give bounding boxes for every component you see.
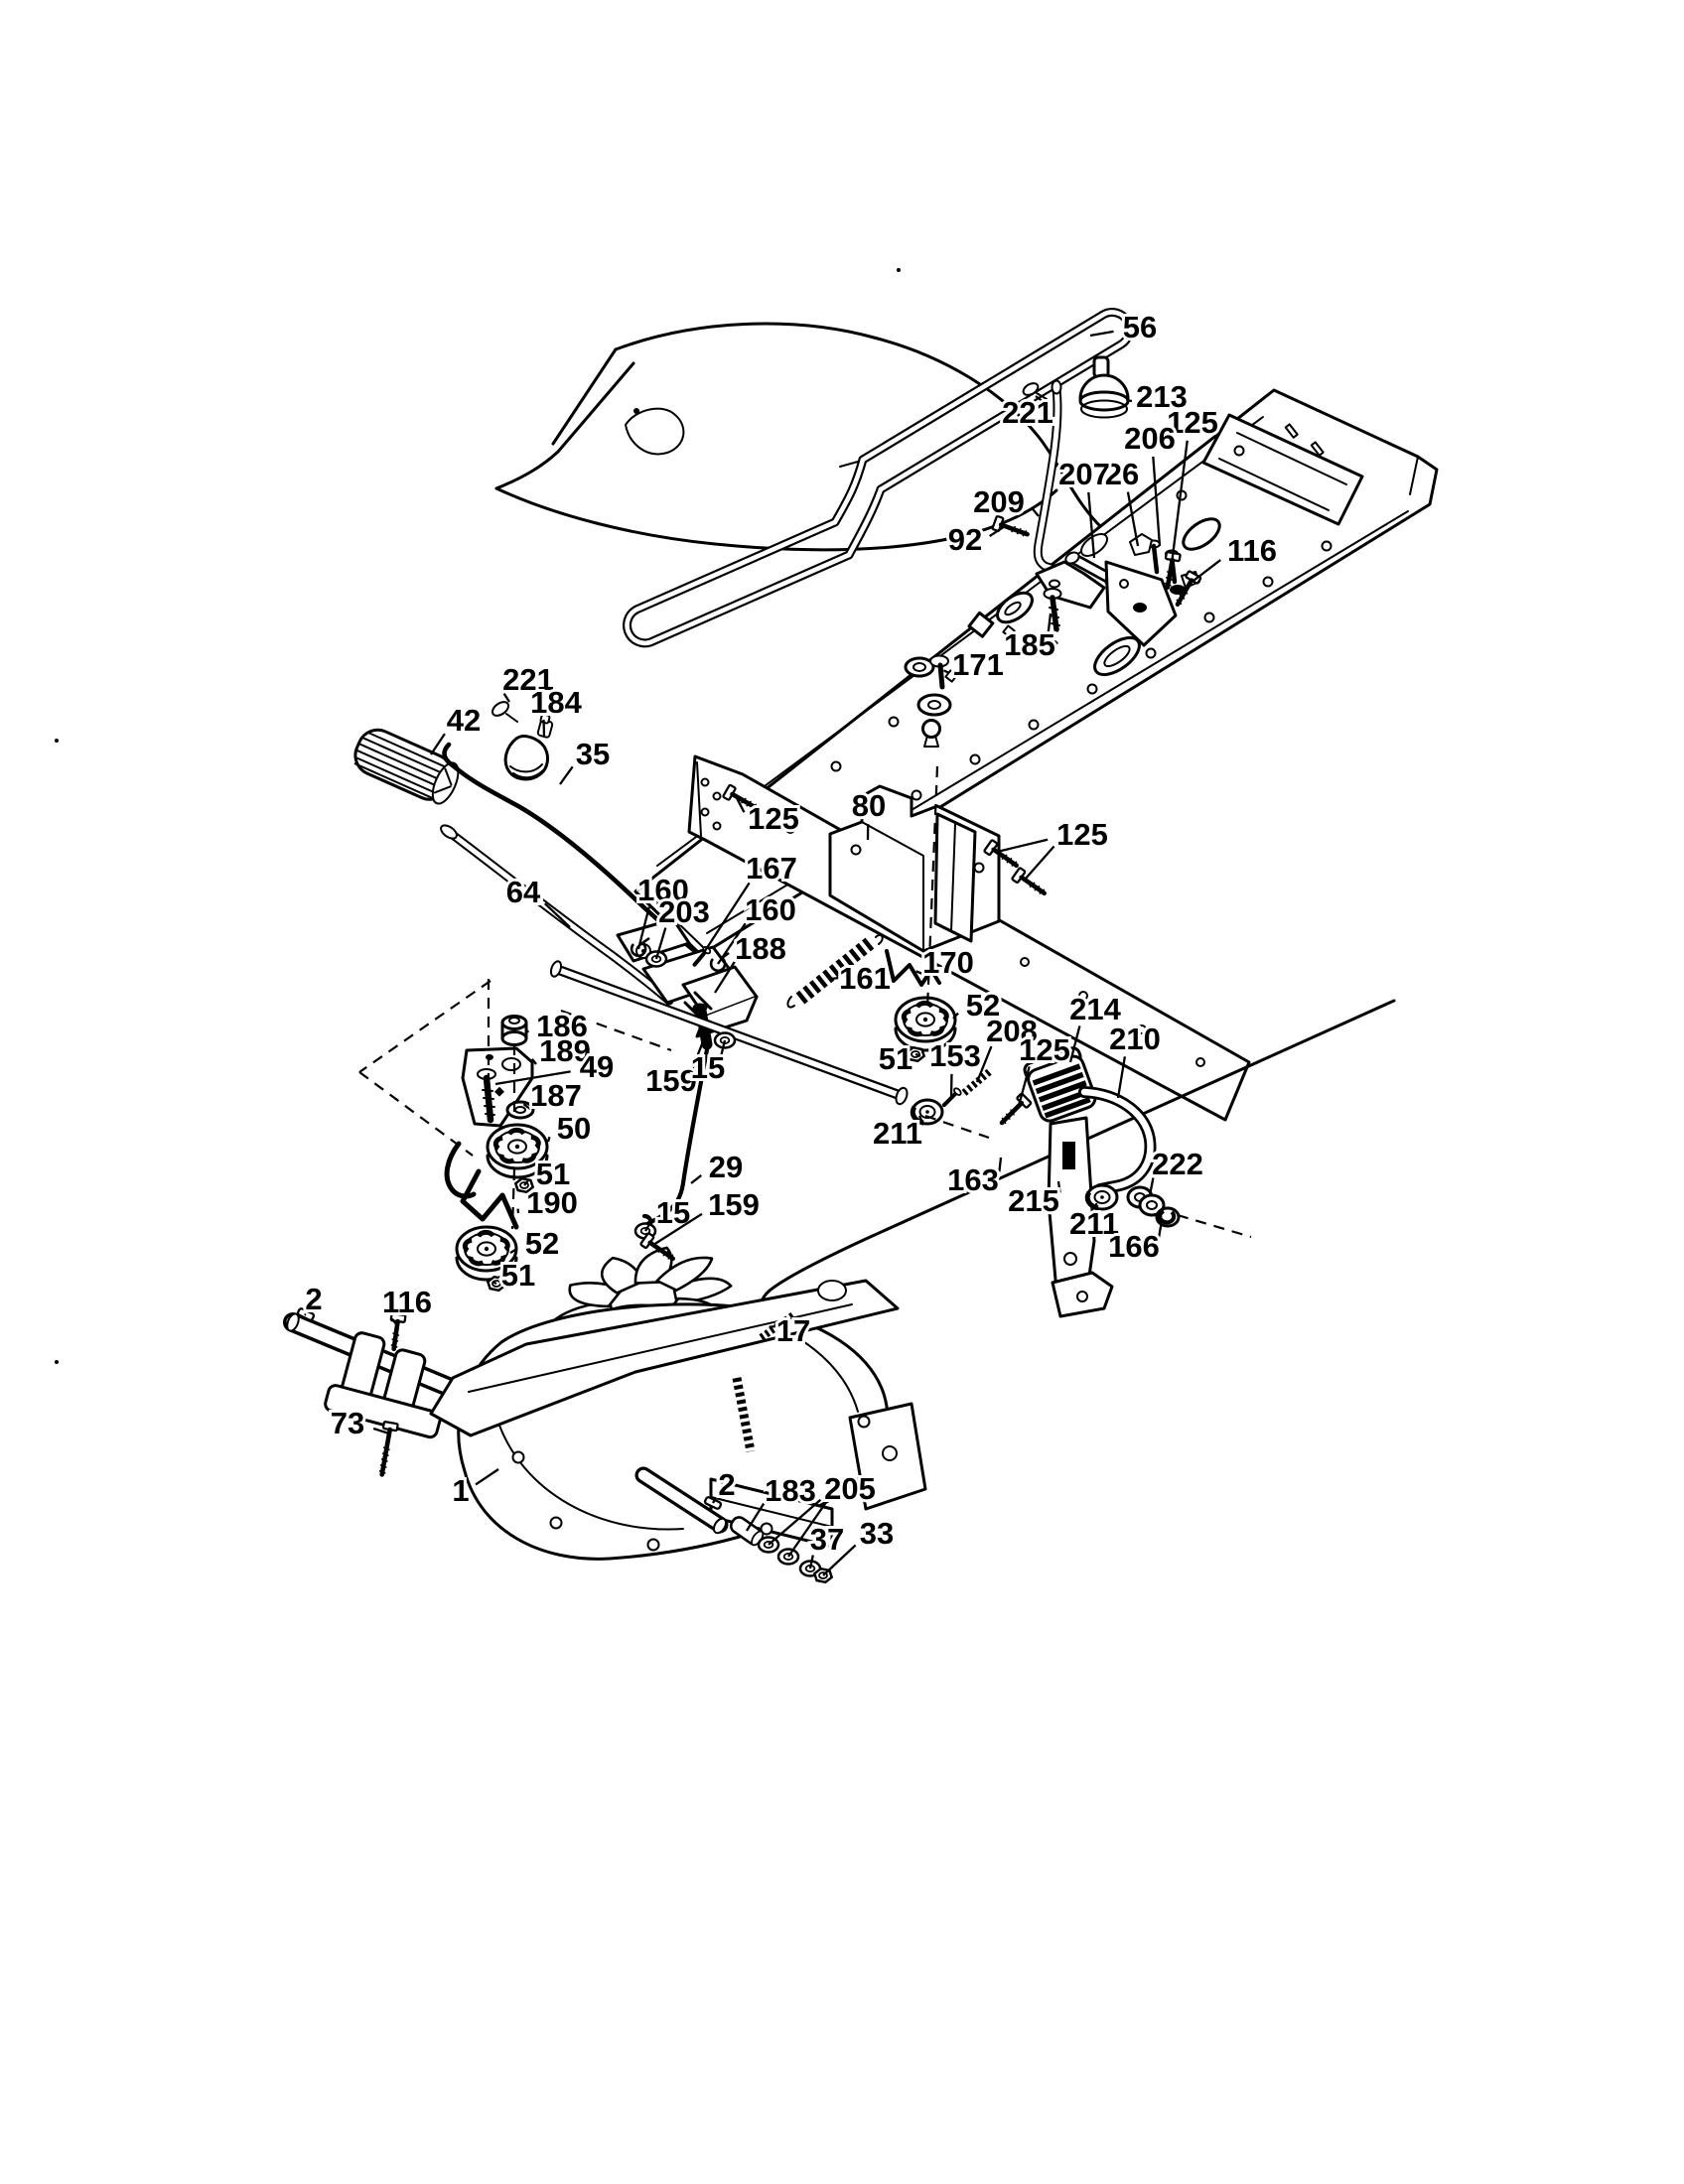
parts-diagram-page: 5622121312520626207209921161851712211844…: [0, 0, 1684, 2184]
part-number-label: 37: [810, 1522, 844, 1557]
leader-line: [691, 1175, 701, 1183]
part-number-label: 206: [1124, 421, 1176, 456]
part-number-label: 160: [745, 892, 796, 927]
part-callout-116: 116: [382, 1285, 432, 1325]
idler-arm-190: [463, 1171, 516, 1227]
knob-184: [505, 714, 553, 779]
part-number-label: 159: [645, 1063, 697, 1098]
part-callout-209: 209: [973, 484, 1039, 519]
part-number-label: 29: [709, 1150, 743, 1184]
part-glyph-bolt-125: [997, 1093, 1032, 1128]
part-number-label: 116: [382, 1285, 432, 1319]
part-callout-2: 2: [305, 1282, 323, 1316]
part-number-label: 215: [1008, 1183, 1059, 1218]
part-number-label: 2: [718, 1467, 735, 1502]
part-number-label: 56: [1123, 310, 1157, 344]
parts-diagram-canvas: 5622121312520626207209921161851712211844…: [0, 0, 1684, 2184]
part-number-label: 116: [1227, 533, 1277, 568]
lever-handle-210: [1084, 1092, 1150, 1189]
part-number-label: 183: [765, 1473, 816, 1508]
part-number-label: 207: [1058, 457, 1110, 491]
part-number-label: 42: [447, 703, 481, 738]
part-number-label: 167: [746, 851, 797, 886]
part-callout-211: 211: [873, 1116, 923, 1151]
part-number-label: 52: [525, 1226, 559, 1261]
leader-line: [560, 766, 573, 784]
washer-187: [507, 1102, 533, 1118]
leader-line: [545, 903, 570, 927]
part-callout-125: 125: [997, 817, 1108, 880]
part-callout-171: 171: [943, 647, 1004, 682]
part-callout-52: 52: [510, 1226, 559, 1261]
part-number-label: 209: [973, 484, 1025, 519]
part-number-label: 49: [580, 1049, 614, 1084]
part-callout-187: 187: [523, 1078, 581, 1113]
part-callout-163: 163: [947, 1158, 1001, 1197]
leader-line: [830, 978, 839, 979]
part-number-label: 33: [860, 1516, 894, 1551]
part-callout-17: 17: [770, 1313, 811, 1348]
part-number-label: 51: [879, 1041, 912, 1076]
part-number-label: 188: [735, 931, 786, 966]
part-number-label: 125: [1019, 1032, 1070, 1067]
part-number-label: 17: [776, 1313, 810, 1348]
part-callout-190: 190: [518, 1185, 578, 1220]
hanger-plates: [935, 814, 975, 941]
part-number-label: 163: [947, 1162, 999, 1197]
part-number-label: 187: [530, 1078, 582, 1113]
part-number-label: 51: [501, 1258, 535, 1293]
part-callout-221: 221: [1002, 395, 1053, 430]
transaxle-assembly: [285, 1232, 925, 1559]
part-number-label: 170: [922, 945, 974, 980]
grommet-166: [1157, 1208, 1179, 1226]
part-number-label: 35: [576, 737, 610, 771]
part-number-label: 161: [839, 961, 891, 996]
part-number-label: 221: [1002, 395, 1053, 430]
clip-221-left: [490, 699, 517, 722]
part-number-label: 171: [952, 647, 1004, 682]
part-number-label: 125: [748, 801, 799, 836]
part-number-label: 50: [557, 1111, 591, 1146]
part-number-label: 211: [873, 1116, 922, 1151]
part-callout-222: 222: [1150, 1147, 1203, 1195]
leader-line: [492, 1282, 496, 1284]
leader-line: [1127, 400, 1132, 401]
part-number-label: 190: [526, 1185, 578, 1220]
part-callout-170: 170: [916, 945, 974, 980]
part-number-label: 26: [1105, 457, 1139, 491]
leader-line: [527, 1030, 528, 1032]
part-number-label: 64: [506, 875, 541, 909]
part-number-label: 15: [691, 1050, 725, 1085]
leader-line: [1033, 509, 1039, 516]
part-number-label: 73: [331, 1406, 364, 1440]
part-number-label: 184: [530, 685, 582, 720]
leader-line: [997, 840, 1048, 852]
part-number-label: 80: [852, 788, 886, 823]
leader-line: [1025, 847, 1054, 880]
leader-line: [548, 1137, 550, 1142]
rod-209-tip: [1052, 381, 1061, 394]
part-callout-42: 42: [431, 703, 481, 754]
cap-186: [502, 1017, 526, 1045]
part-callout-215: 215: [1008, 1181, 1059, 1218]
part-number-label: 205: [824, 1471, 876, 1506]
part-number-label: 166: [1108, 1229, 1160, 1264]
part-number-label: 210: [1109, 1022, 1161, 1056]
part-number-label: 159: [708, 1187, 760, 1222]
part-callout-50: 50: [548, 1111, 591, 1146]
part-number-label: 153: [929, 1038, 981, 1073]
transaxle-housing: [431, 1281, 925, 1559]
idler-bracket-cluster: [447, 1017, 533, 1228]
part-number-label: 222: [1152, 1147, 1203, 1181]
leader-line: [1090, 332, 1114, 336]
part-callout-29: 29: [691, 1150, 743, 1184]
leader-line: [999, 1158, 1001, 1171]
part-number-label: 125: [1056, 817, 1108, 852]
part-number-label: 92: [948, 522, 982, 557]
part-number-label: 2: [305, 1282, 322, 1316]
part-callout-161: 161: [830, 961, 891, 996]
part-callout-64: 64: [506, 875, 570, 927]
leader-line: [915, 1054, 920, 1056]
part-number-label: 203: [658, 894, 710, 929]
part-callout-35: 35: [560, 737, 610, 784]
part-number-label: 185: [1004, 627, 1055, 662]
part-number-label: 1: [452, 1473, 469, 1508]
